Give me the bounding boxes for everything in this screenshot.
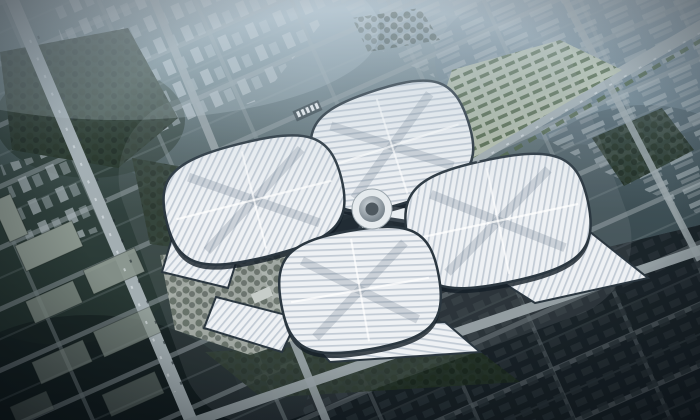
vignette-overlay: [0, 0, 700, 420]
aerial-rendering-canvas: [0, 0, 700, 420]
aerial-rendering: [0, 0, 700, 420]
